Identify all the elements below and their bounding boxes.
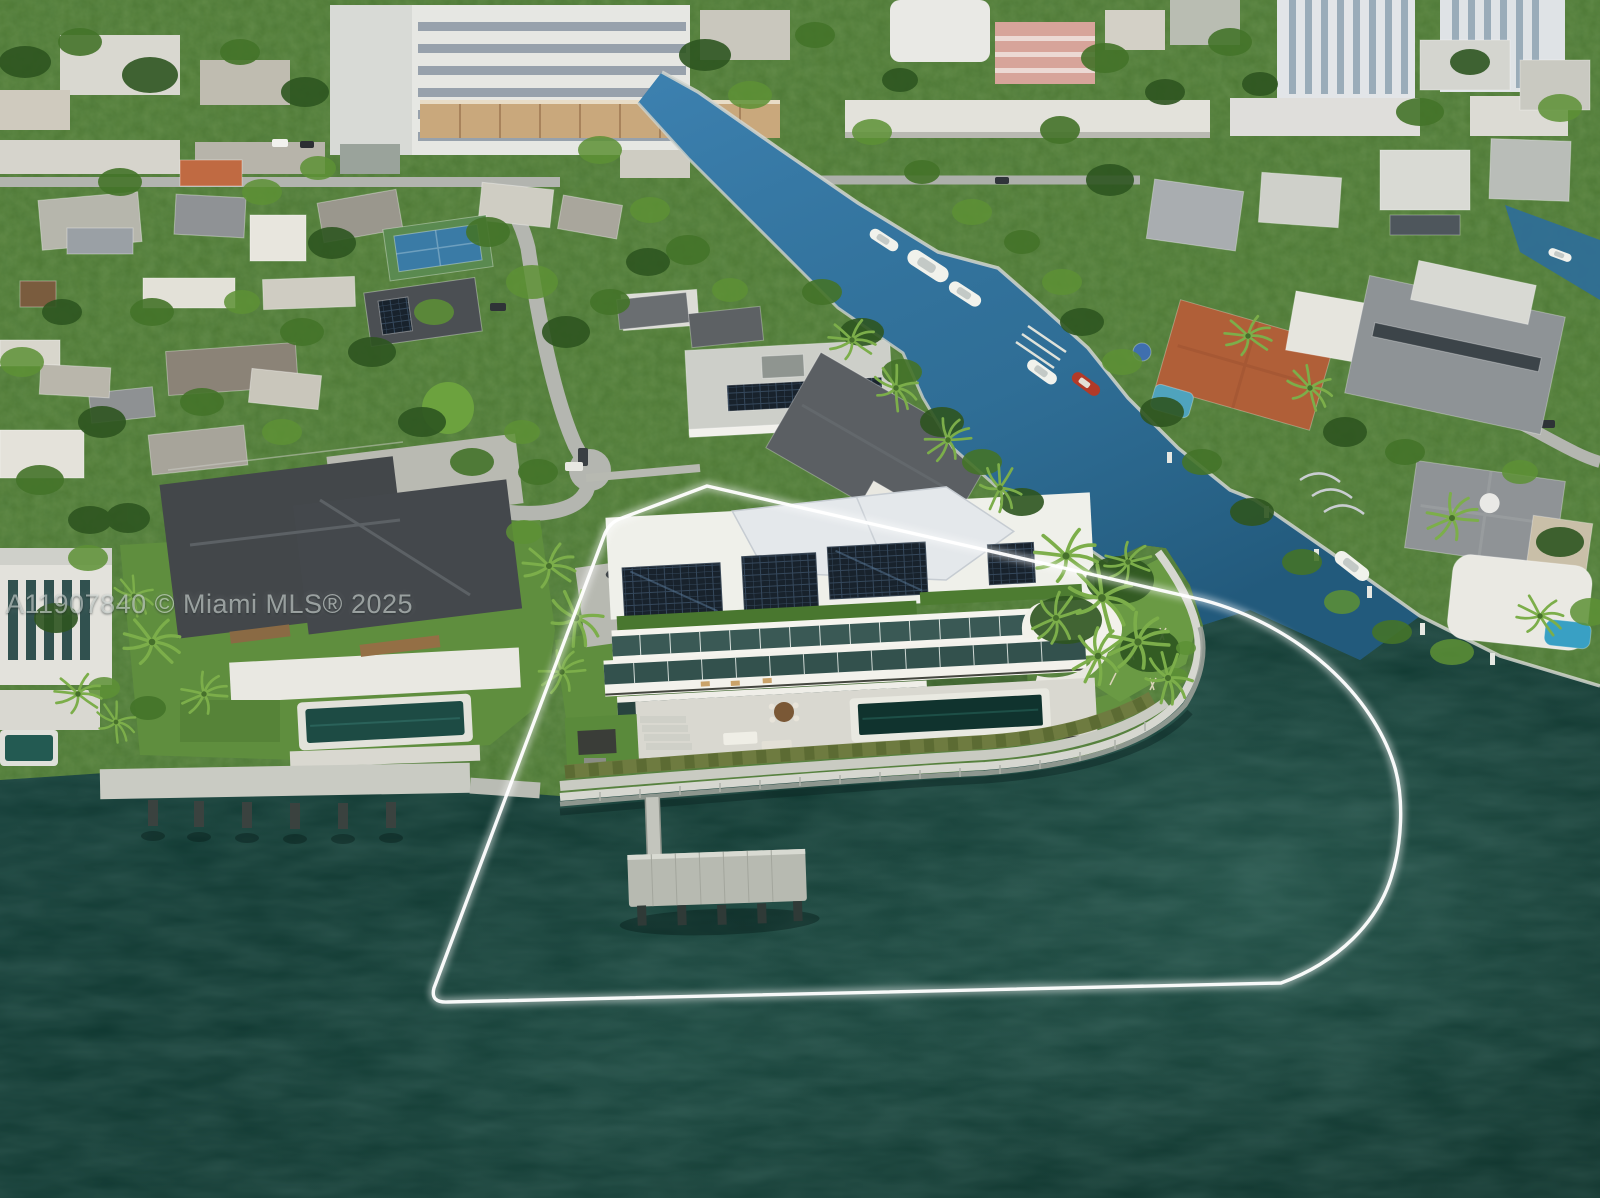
aerial-listing-photo: A11907840 © Miami MLS® 2025 [0,0,1600,1198]
aerial-scene [0,0,1600,1198]
far-left-pool [5,735,53,761]
left-pool [297,693,473,750]
pink-building [995,22,1095,84]
white-curved-house [1446,553,1598,653]
condo-tower [1277,0,1415,98]
apartment-rows [420,96,1568,138]
curved-white-building [890,0,990,62]
solar-array [742,553,819,613]
